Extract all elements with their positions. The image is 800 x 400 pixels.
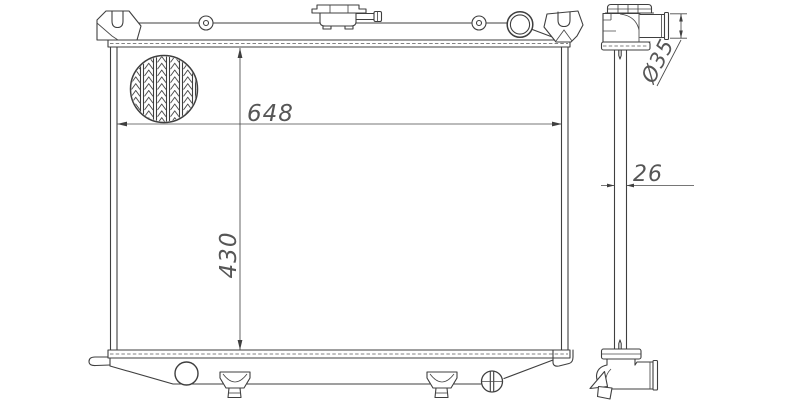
drain-plug xyxy=(482,371,503,392)
dimension-height: 430 xyxy=(216,48,242,350)
bottom-bracket-left xyxy=(220,372,250,398)
filler-cap xyxy=(312,5,382,29)
bottom-bracket-right xyxy=(427,372,457,398)
inlet-port-circle xyxy=(507,12,533,38)
bottom-crimp-band xyxy=(108,350,570,358)
side-view: 26 Ø35 xyxy=(590,5,694,400)
mounting-bracket-right xyxy=(544,11,583,42)
bottom-header-flange xyxy=(602,340,642,359)
height-dim-label: 430 xyxy=(216,232,242,279)
top-crimp-band xyxy=(108,40,570,47)
top-tank-hole-left xyxy=(199,16,213,30)
inlet-pipe xyxy=(640,13,669,40)
elbow-tab xyxy=(598,387,613,400)
top-tank-hole-right xyxy=(472,16,486,30)
top-header-flange xyxy=(602,42,651,59)
outlet-elbow xyxy=(590,359,658,399)
filler-cap-side xyxy=(606,5,654,14)
front-view: 648 430 xyxy=(89,5,583,398)
depth-dim-label: 26 xyxy=(633,162,663,187)
core-profile xyxy=(615,50,627,349)
mounting-bracket-left xyxy=(97,11,141,40)
elbow-bracket xyxy=(590,372,608,389)
technical-drawing-canvas: 648 430 xyxy=(0,0,800,400)
width-dim-label: 648 xyxy=(247,101,294,127)
outlet-port-circle xyxy=(175,362,198,385)
radiator-drawing: 648 430 xyxy=(0,0,800,400)
core-detail-circle xyxy=(130,56,198,124)
